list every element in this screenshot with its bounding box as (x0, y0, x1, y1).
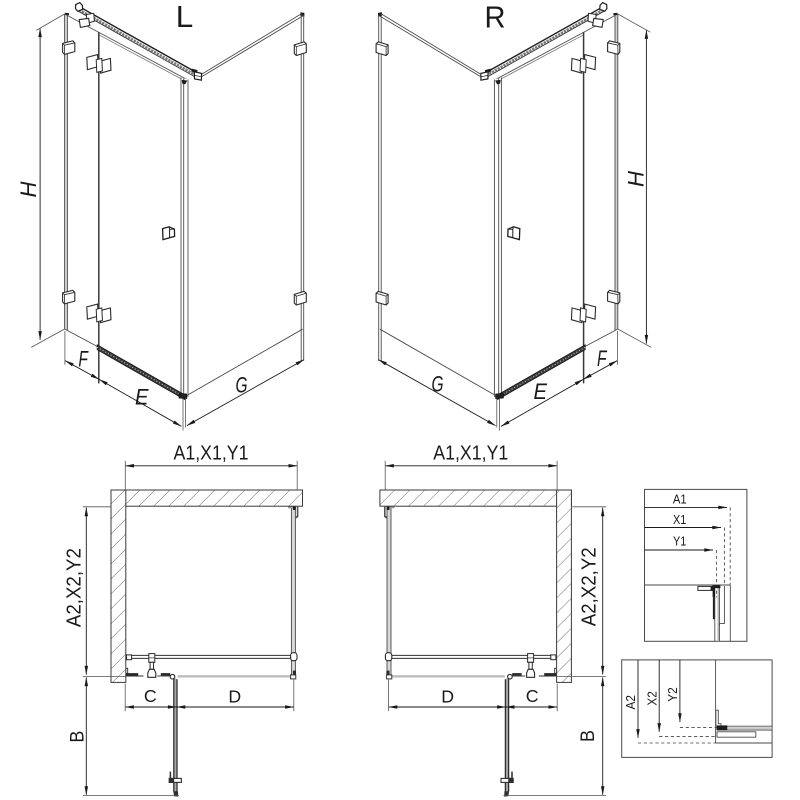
svg-text:C: C (526, 686, 539, 706)
svg-text:A2,X2,Y2: A2,X2,Y2 (64, 548, 86, 627)
svg-text:R: R (485, 1, 506, 35)
svg-text:E: E (135, 384, 149, 409)
svg-text:F: F (78, 346, 88, 371)
svg-text:H: H (624, 170, 649, 187)
svg-text:D: D (441, 686, 454, 706)
svg-text:X2: X2 (645, 691, 659, 706)
svg-text:A1: A1 (673, 493, 687, 507)
svg-text:A2,X2,Y2: A2,X2,Y2 (579, 547, 601, 626)
svg-text:Y1: Y1 (673, 535, 686, 549)
svg-text:X1: X1 (673, 513, 686, 527)
svg-text:F: F (597, 346, 607, 371)
svg-text:G: G (236, 373, 248, 398)
svg-text:Y2: Y2 (666, 687, 680, 702)
svg-text:A2: A2 (624, 695, 638, 710)
svg-text:B: B (577, 730, 599, 742)
svg-text:L: L (176, 0, 194, 34)
svg-text:E: E (534, 379, 548, 404)
svg-text:A1,X1,Y1: A1,X1,Y1 (174, 442, 249, 464)
svg-text:A1,X1,Y1: A1,X1,Y1 (433, 442, 508, 464)
svg-text:H: H (16, 181, 41, 198)
svg-text:C: C (144, 686, 157, 706)
svg-text:D: D (228, 686, 241, 706)
svg-text:B: B (66, 731, 88, 743)
svg-text:G: G (432, 372, 444, 397)
